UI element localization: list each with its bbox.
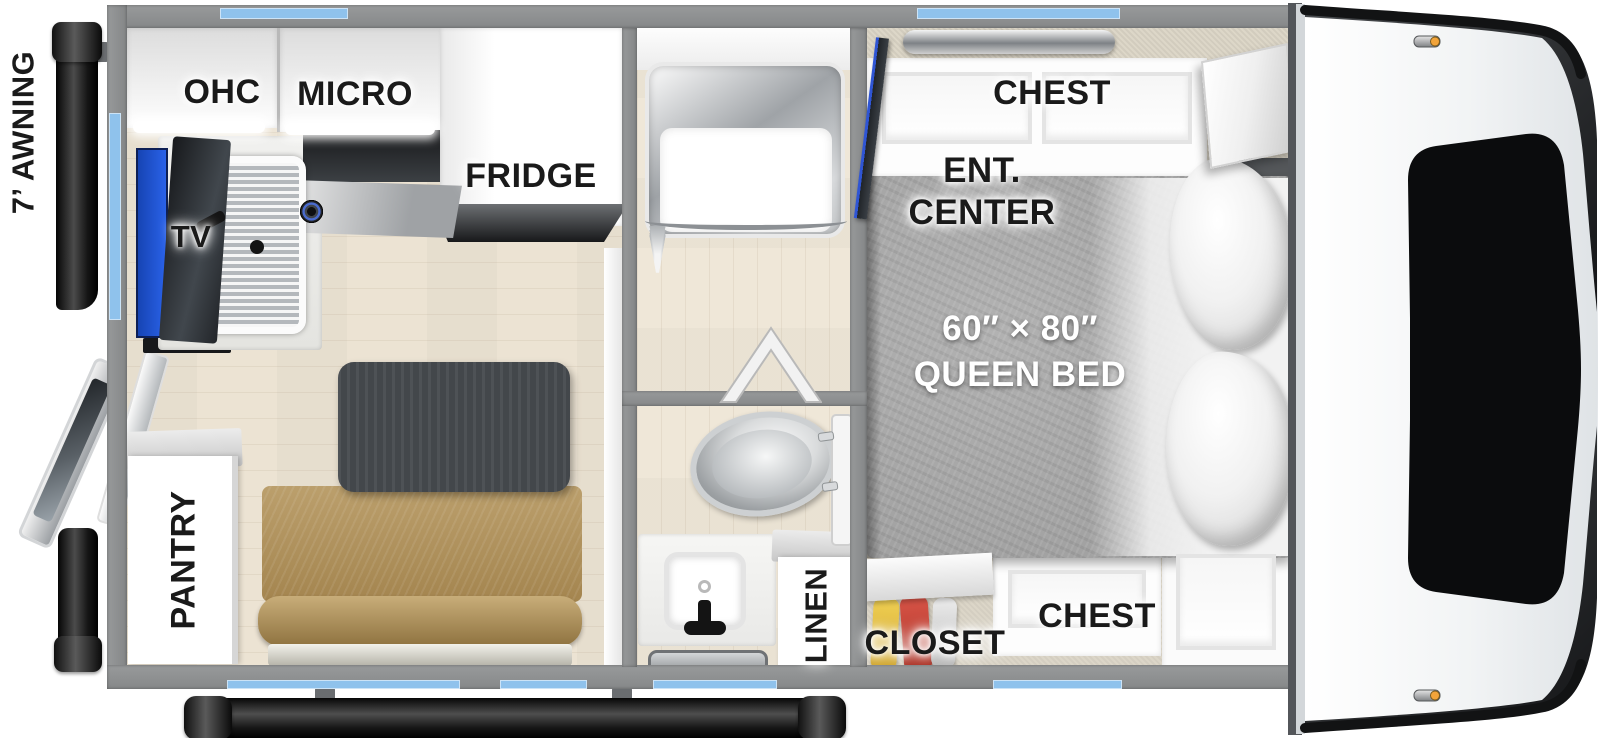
window-top-kitchen <box>220 8 348 19</box>
closet-shelf <box>864 553 994 602</box>
shower-curtain-icon <box>648 226 844 278</box>
ent-center-label-line2: CENTER <box>882 195 1082 230</box>
bath-faucet-bar <box>684 621 726 635</box>
floorplan-canvas: 7’ AWNING <box>0 0 1600 738</box>
bath-door-trim <box>604 248 622 665</box>
sink-drain <box>250 240 264 254</box>
wall-left <box>107 5 127 688</box>
pantry-label-wrap: PANTRY <box>128 456 238 664</box>
marker-light-bottom-icon <box>1414 690 1440 701</box>
awning-length-text: 7’ AWNING <box>8 51 39 215</box>
window-bottom-bath <box>653 680 777 689</box>
wall-kitchen-bath-divider <box>622 28 637 667</box>
bench-kick-panel <box>268 644 572 666</box>
dinette-bench <box>262 486 582 602</box>
chest-bottom-label: CHEST <box>1007 599 1187 633</box>
linen-label: LINEN <box>801 567 832 663</box>
dinette-table <box>338 362 570 492</box>
cab-windshield <box>1408 134 1581 605</box>
pantry-label: PANTRY <box>166 491 200 630</box>
ent-center-label-line1: ENT. <box>902 153 1062 188</box>
linen-label-wrap: LINEN <box>778 552 854 678</box>
bath-sink-drain <box>698 580 711 593</box>
ohc-label: OHC <box>152 75 292 109</box>
ohc-light-bar <box>133 121 265 133</box>
bed-edge-shadow <box>867 176 881 558</box>
cab-back-trim <box>1296 4 1305 734</box>
awning-length-label: 7’ AWNING <box>0 25 46 240</box>
awning-roller-bottom <box>190 698 843 738</box>
bed-size-label: 60″ × 80″ <box>910 311 1130 346</box>
closet-label: CLOSET <box>850 626 1020 660</box>
burner-icon <box>300 200 323 223</box>
window-bottom-dinette <box>227 680 460 689</box>
chest-top-label: CHEST <box>952 76 1152 110</box>
bedside-cabinet-panel <box>1176 554 1276 650</box>
entry-door-window <box>32 377 111 522</box>
counter-under-fridge <box>428 204 628 242</box>
window-bottom-kitchen <box>500 680 587 689</box>
micro-light-bar <box>285 123 435 135</box>
awning-roller-bottom-cap-left <box>184 696 232 738</box>
tv-label: TV <box>156 221 226 252</box>
window-top-bedroom <box>917 8 1120 19</box>
grab-rail-left-cap <box>54 636 102 672</box>
micro-label: MICRO <box>272 77 438 111</box>
awning-roller-bottom-cap-right <box>798 696 846 738</box>
fridge <box>440 28 622 226</box>
window-bottom-bedroom <box>993 680 1122 689</box>
window-left-kitchen <box>109 113 121 320</box>
bed-type-label: QUEEN BED <box>895 357 1145 392</box>
awning-roller-left <box>56 24 98 310</box>
chest-door-open <box>1201 43 1297 169</box>
range-hood <box>303 130 443 182</box>
bath-door-open-icon <box>718 324 822 406</box>
bench-cushion-roll <box>258 596 582 646</box>
marker-light-top-icon <box>1414 36 1440 47</box>
bedroom-grab-rail <box>903 30 1115 54</box>
fridge-label: FRIDGE <box>441 159 621 193</box>
awning-roller-top-cap <box>52 22 102 62</box>
truck-cab <box>1296 0 1600 738</box>
